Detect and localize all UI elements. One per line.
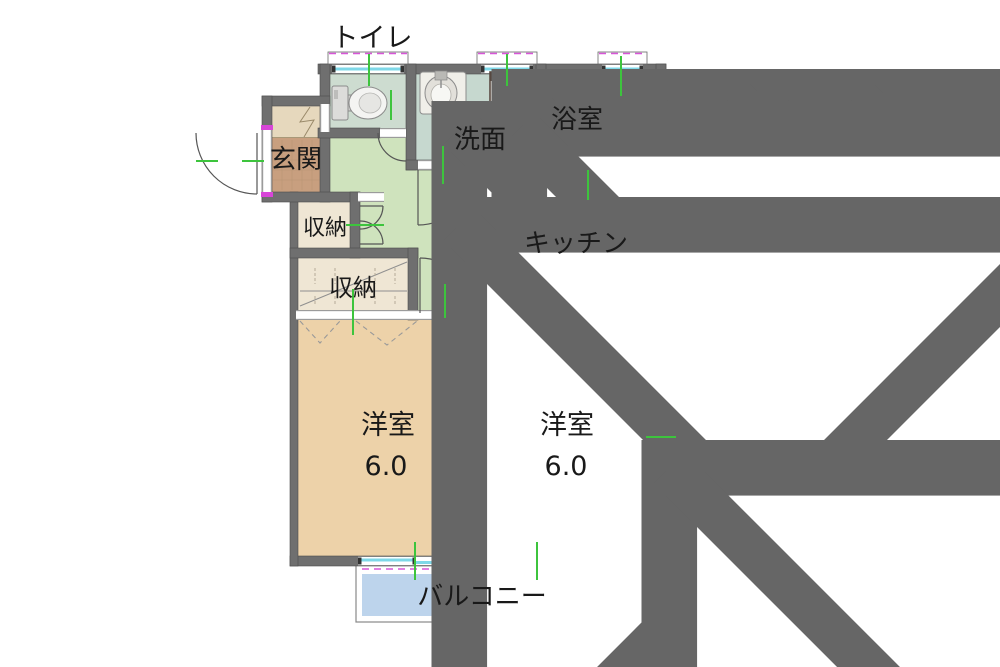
- label-storage-upper: 収納: [303, 216, 347, 241]
- label-entrance: 玄関: [270, 145, 322, 175]
- label-kitchen: キッチン: [524, 229, 628, 259]
- label-storage-lower: 収納: [329, 274, 377, 302]
- label-bathroom: 浴室: [551, 105, 603, 135]
- label-washroom: 洗面: [454, 125, 506, 155]
- entrance-step: [272, 106, 322, 138]
- floor-plan-page: トイレ 玄関 収納 収納 洗面 浴室 キッチン 洋室 6.0 洋室 6.0 バル…: [0, 0, 1000, 667]
- wall-toilet-right: [406, 64, 416, 170]
- label-bedroom-right-size: 6.0: [545, 451, 588, 482]
- wall-storage-lower-right: [408, 248, 418, 320]
- opening-closet-doors: [296, 310, 418, 320]
- toilet-fixture: [332, 86, 387, 120]
- label-bedroom-right: 洋室: [540, 410, 594, 441]
- wall-entrance-bottom: [262, 192, 360, 202]
- label-toilet: トイレ: [332, 23, 413, 54]
- opening-toilet-door: [380, 128, 406, 138]
- entrance-door-arc: [196, 133, 257, 194]
- floor-plan: トイレ 玄関 収納 収納 洗面 浴室 キッチン 洋室 6.0 洋室 6.0 バル…: [0, 0, 1000, 667]
- label-bedroom-left-size: 6.0: [365, 451, 408, 482]
- opening-entrance-hall: [320, 104, 330, 132]
- opening-corridor: [358, 192, 384, 202]
- wall-storage-divider: [290, 248, 418, 258]
- door-jamb-marker-bottom: [261, 192, 273, 197]
- label-balcony: バルコニー: [417, 582, 546, 612]
- label-bedroom-left: 洋室: [361, 410, 415, 441]
- door-jamb-marker-top: [261, 125, 273, 130]
